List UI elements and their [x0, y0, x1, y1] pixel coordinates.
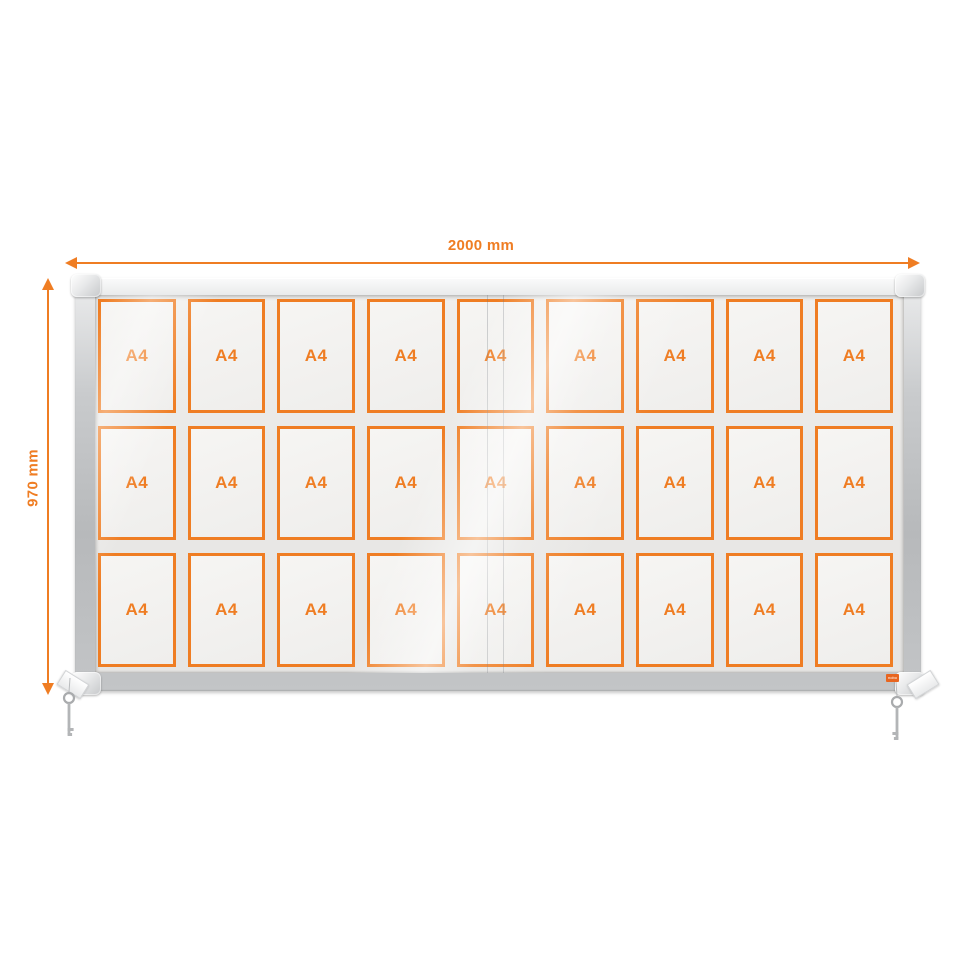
a4-pocket: A4: [546, 553, 624, 667]
a4-pocket: A4: [815, 553, 893, 667]
key-icon: [58, 678, 80, 750]
a4-pocket: A4: [636, 299, 714, 413]
a4-pocket: A4: [815, 299, 893, 413]
a4-pocket: A4: [546, 426, 624, 540]
arrow-up-icon: [42, 278, 54, 290]
arrow-left-icon: [65, 257, 77, 269]
display-case-frame: A4A4A4A4A4A4A4A4A4A4A4A4A4A4A4A4A4A4A4A4…: [75, 278, 921, 691]
a4-pocket: A4: [457, 299, 535, 413]
a4-pocket: A4: [367, 553, 445, 667]
corner-cap-top-left: [71, 274, 101, 297]
a4-pocket: A4: [636, 426, 714, 540]
a4-pocket: A4: [726, 553, 804, 667]
key-icon: [886, 682, 908, 754]
a4-pocket: A4: [188, 299, 266, 413]
height-dimension-line: [47, 289, 49, 685]
a4-pocket: A4: [98, 553, 176, 667]
a4-pocket: A4: [367, 299, 445, 413]
sliding-door-edge: [503, 295, 504, 673]
arrow-right-icon: [908, 257, 920, 269]
width-dimension-label: 2000 mm: [0, 237, 962, 254]
sliding-door-edge: [487, 295, 488, 673]
a4-pocket: A4: [277, 299, 355, 413]
brand-label: nobo: [886, 674, 899, 682]
pocket-grid: A4A4A4A4A4A4A4A4A4A4A4A4A4A4A4A4A4A4A4A4…: [98, 299, 893, 667]
a4-pocket: A4: [636, 553, 714, 667]
product-image: 2000 mm 970 mm A4A4A4A4A4A4A4A4A4A4A4A4A…: [0, 0, 962, 962]
corner-cap-top-right: [895, 274, 925, 297]
a4-pocket: A4: [98, 426, 176, 540]
a4-pocket: A4: [188, 553, 266, 667]
a4-pocket: A4: [188, 426, 266, 540]
a4-pocket: A4: [457, 426, 535, 540]
a4-pocket: A4: [726, 426, 804, 540]
width-dimension-line: [76, 262, 910, 264]
arrow-down-icon: [42, 683, 54, 695]
glass-pane: A4A4A4A4A4A4A4A4A4A4A4A4A4A4A4A4A4A4A4A4…: [95, 295, 904, 673]
a4-pocket: A4: [815, 426, 893, 540]
height-dimension-label: 970 mm: [25, 449, 42, 507]
a4-pocket: A4: [457, 553, 535, 667]
a4-pocket: A4: [546, 299, 624, 413]
a4-pocket: A4: [726, 299, 804, 413]
a4-pocket: A4: [277, 426, 355, 540]
a4-pocket: A4: [277, 553, 355, 667]
a4-pocket: A4: [98, 299, 176, 413]
a4-pocket: A4: [367, 426, 445, 540]
